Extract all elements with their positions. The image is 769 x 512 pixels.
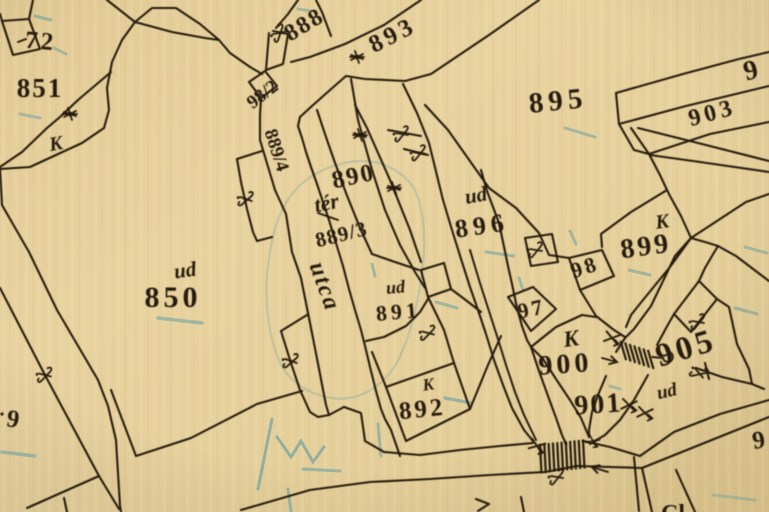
svg-text:ud: ud [172, 257, 198, 284]
svg-text:Cl: Cl [661, 501, 685, 512]
svg-text:ud: ud [385, 276, 407, 298]
svg-text:ud: ud [463, 181, 490, 209]
svg-text:900: 900 [537, 347, 593, 382]
svg-text:72: 72 [24, 27, 57, 57]
svg-text:901: 901 [573, 387, 623, 421]
svg-text:850: 850 [145, 281, 202, 314]
svg-text:892: 892 [398, 394, 447, 426]
svg-text:895: 895 [527, 82, 589, 120]
svg-text:891: 891 [375, 297, 422, 326]
svg-text:851: 851 [17, 73, 64, 103]
